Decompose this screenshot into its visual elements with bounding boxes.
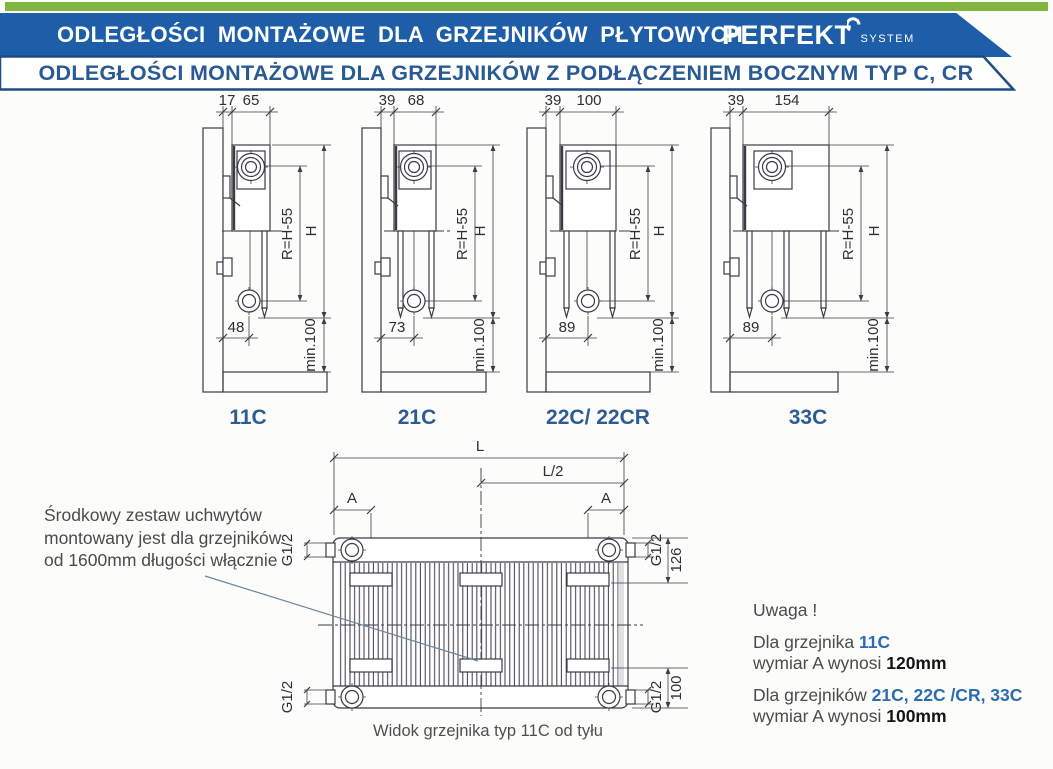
- rear-view-diagram: L L/2 A A: [279, 438, 688, 740]
- dim-g12-top-right: G1/2: [648, 534, 665, 567]
- dim-l: L: [476, 438, 484, 455]
- type-label-21c: 21C: [398, 406, 437, 429]
- diagram-33c: 39 154 89 R=H-55: [711, 92, 894, 429]
- model-codes: 11C: [859, 632, 890, 652]
- note-row: Dla grzejników 21C, 22C /CR, 33C: [753, 685, 1033, 706]
- dim-h: H: [866, 226, 883, 237]
- note-line: montowany jest dla grzejników: [44, 527, 294, 550]
- diagram-21c: 39 68 73 R=H-55 H: [362, 92, 500, 429]
- dim-bottom: 89: [559, 319, 576, 336]
- model-codes: 21C, 22C /CR, 33C: [872, 685, 1023, 705]
- note-text: Dla grzejnika: [753, 632, 859, 652]
- note-line: od 1600mm długości włącznie: [44, 549, 294, 572]
- dim-r: R=H-55: [627, 208, 644, 260]
- dim-depth: 65: [243, 92, 260, 109]
- dim-min: min.100: [650, 318, 667, 371]
- note-row: wymiar A wynosi 100mm: [753, 706, 1033, 727]
- dim-gap: 39: [728, 92, 745, 109]
- dim-min: min.100: [865, 318, 882, 371]
- dim-a-right: A: [601, 490, 611, 507]
- warning-label: Uwaga !: [753, 600, 1033, 621]
- dim-depth: 100: [576, 92, 601, 109]
- diagram-22c: 39 100 89 R=H-55 H: [527, 92, 679, 429]
- note-line: Środkowy zestaw uchwytów: [44, 504, 294, 527]
- dim-min: min.100: [471, 318, 488, 371]
- dim-h: H: [303, 226, 320, 237]
- type-label-22c: 22C/ 22CR: [546, 406, 650, 429]
- dim-126: 126: [668, 547, 685, 572]
- dim-depth: 154: [774, 92, 799, 109]
- rear-view-caption: Widok grzejnika typ 11C od tyłu: [373, 722, 603, 740]
- dim-r: R=H-55: [840, 208, 857, 260]
- dimension-value: 120mm: [886, 653, 946, 673]
- note-text: wymiar A wynosi: [753, 653, 886, 673]
- dimension-value: 100mm: [886, 706, 946, 726]
- note-centre-bracket: Środkowy zestaw uchwytów montowany jest …: [44, 504, 294, 572]
- dim-r: R=H-55: [279, 208, 296, 260]
- diagram-11c: 17 65 48 R=H-55 H min.1: [203, 92, 331, 429]
- note-row: wymiar A wynosi 120mm: [753, 653, 1033, 674]
- note-text: wymiar A wynosi: [753, 706, 886, 726]
- dim-g12-bottom-left: G1/2: [279, 681, 296, 714]
- dim-100: 100: [668, 675, 685, 700]
- dim-bottom: 89: [743, 319, 760, 336]
- dim-l-half: L/2: [543, 463, 564, 480]
- dim-gap: 17: [219, 92, 236, 109]
- note-text: Dla grzejników: [753, 685, 872, 705]
- dim-a-left: A: [347, 490, 357, 507]
- type-label-33c: 33C: [789, 406, 828, 429]
- dim-r: R=H-55: [454, 208, 471, 260]
- note-dimension-a: Uwaga ! Dla grzejnika 11C wymiar A wynos…: [753, 600, 1033, 727]
- document-page: ODLEGŁOŚCI MONTAŻOWE DLA GRZEJNIKÓW PŁYT…: [0, 0, 1053, 769]
- dim-h: H: [472, 226, 489, 237]
- note-row: Dla grzejnika 11C: [753, 632, 1033, 653]
- dim-gap: 39: [545, 92, 562, 109]
- type-label-11c: 11C: [229, 406, 266, 429]
- dim-h: H: [651, 226, 668, 237]
- section-title: ODLEGŁOŚCI MONTAŻOWE DLA GRZEJNIKÓW Z PO…: [0, 57, 1012, 89]
- dim-bottom: 48: [228, 319, 245, 336]
- dim-min: min.100: [302, 318, 319, 371]
- dim-depth: 68: [408, 92, 425, 109]
- dim-gap: 39: [379, 92, 396, 109]
- dim-bottom: 73: [389, 319, 406, 336]
